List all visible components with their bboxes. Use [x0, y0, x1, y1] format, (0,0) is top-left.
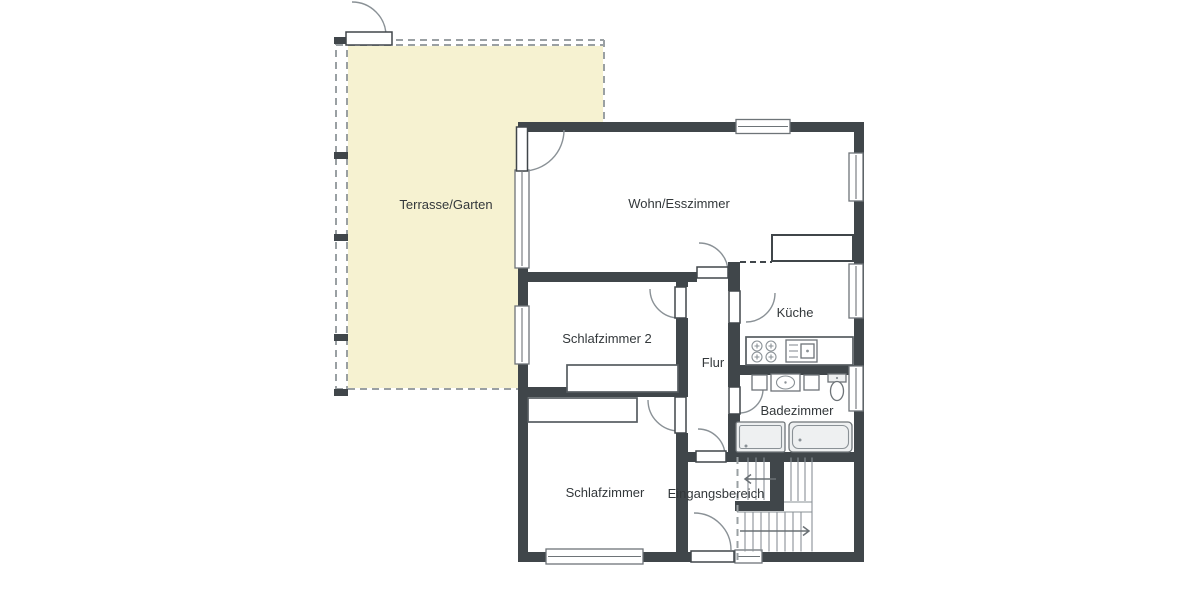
floor-plan-drawing: Terrasse/Garten Wohn/Esszimmer Schlafzim… — [0, 0, 1200, 600]
garden-gate-leaf — [346, 32, 392, 45]
bath-cabinet-right — [804, 375, 819, 390]
room-label-badezimmer: Badezimmer — [761, 403, 835, 418]
window-entry-bottom — [735, 550, 762, 563]
breakfast-bar-counter — [772, 235, 853, 261]
room-label-eingangsbereich: Eingangsbereich — [668, 486, 765, 501]
window-bath-right — [849, 366, 863, 411]
floor-plan: Terrasse/Garten Wohn/Esszimmer Schlafzim… — [0, 0, 1200, 600]
wall-living-bottom — [518, 272, 698, 282]
kitchen-fixtures — [746, 337, 853, 365]
window-living-left — [515, 170, 529, 268]
wardrobe-bedroom — [528, 398, 637, 422]
garden-gate-swing-arc — [352, 2, 386, 36]
window-living-top — [736, 120, 790, 134]
window-bedroom2-left — [515, 306, 529, 364]
window-living-right — [849, 153, 863, 201]
bath-cabinet-left — [752, 375, 767, 390]
room-label-kueche: Küche — [777, 305, 814, 320]
window-kitchen-right — [849, 264, 863, 318]
stair-newel-wall-horizontal — [735, 501, 784, 511]
bathtub-icon — [789, 422, 852, 452]
kitchen-sink-icon — [786, 340, 817, 362]
shower-icon — [736, 422, 785, 452]
bath-sink-icon — [771, 374, 800, 391]
room-label-schlafzimmer2: Schlafzimmer 2 — [562, 331, 652, 346]
window-bedroom-bottom — [546, 549, 643, 564]
exterior-wall-top — [518, 122, 864, 132]
room-label-terrasse: Terrasse/Garten — [399, 197, 492, 212]
wardrobe-bedroom2 — [567, 365, 678, 392]
room-label-schlafzimmer: Schlafzimmer — [566, 485, 645, 500]
room-label-flur: Flur — [702, 355, 725, 370]
room-label-wohnzimmer: Wohn/Esszimmer — [628, 196, 730, 211]
